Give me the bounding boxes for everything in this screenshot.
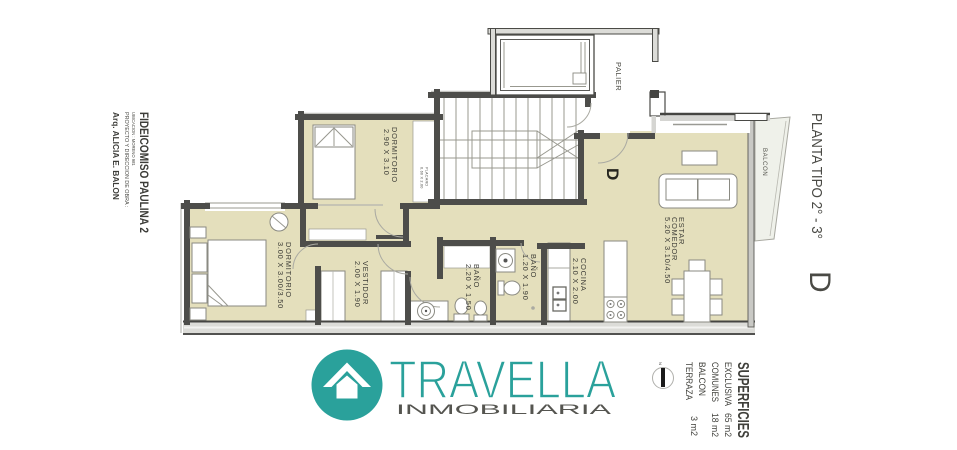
svg-text:D: D bbox=[603, 168, 622, 180]
svg-text:BALCON: BALCON bbox=[696, 362, 707, 396]
svg-text:D: D bbox=[803, 271, 836, 293]
svg-text:65 m2: 65 m2 bbox=[722, 413, 733, 437]
svg-text:Arq. ALICIA E. BALON: Arq. ALICIA E. BALON bbox=[111, 112, 121, 200]
svg-text:TERRAZA: TERRAZA bbox=[683, 362, 694, 401]
svg-text:UBICACION : MORENO 981: UBICACION : MORENO 981 bbox=[131, 112, 136, 166]
svg-text:BALCON: BALCON bbox=[761, 148, 767, 176]
svg-text:FIDEICOMISO PAULINA 2: FIDEICOMISO PAULINA 2 bbox=[137, 112, 149, 233]
svg-text:3 m2: 3 m2 bbox=[688, 416, 699, 436]
svg-text:N: N bbox=[658, 362, 663, 365]
svg-text:PROYECTO Y DIRECCION DE OBRA :: PROYECTO Y DIRECCION DE OBRA : bbox=[123, 112, 129, 207]
svg-text:COMUNES: COMUNES bbox=[709, 362, 720, 402]
svg-text:18 m2: 18 m2 bbox=[709, 413, 720, 437]
svg-text:EXCLUSIVA: EXCLUSIVA bbox=[722, 362, 733, 407]
svg-text:SUPERFICIES: SUPERFICIES bbox=[734, 362, 751, 438]
svg-text:0.60 X 2.00: 0.60 X 2.00 bbox=[420, 167, 424, 189]
svg-text:2.20 X 1.50: 2.20 X 1.50 bbox=[464, 264, 473, 311]
svg-text:5.20 X 3.10/4.50: 5.20 X 3.10/4.50 bbox=[663, 217, 672, 284]
svg-text:2.00 X 1.90: 2.00 X 1.90 bbox=[353, 261, 362, 308]
svg-text:INMOBILIARIA: INMOBILIARIA bbox=[396, 401, 612, 417]
svg-text:1.20 X 1.90: 1.20 X 1.90 bbox=[521, 254, 530, 301]
svg-text:PLACARD: PLACARD bbox=[425, 167, 429, 186]
svg-text:3.00 X 3.00/3.50: 3.00 X 3.00/3.50 bbox=[276, 242, 285, 309]
svg-text:2.90 X 3.10: 2.90 X 3.10 bbox=[382, 129, 391, 176]
svg-text:PALIER: PALIER bbox=[614, 62, 623, 91]
svg-text:2.10 X 2.00: 2.10 X 2.00 bbox=[571, 258, 580, 305]
svg-text:PLANTA TIPO 2° - 3°: PLANTA TIPO 2° - 3° bbox=[808, 113, 825, 239]
